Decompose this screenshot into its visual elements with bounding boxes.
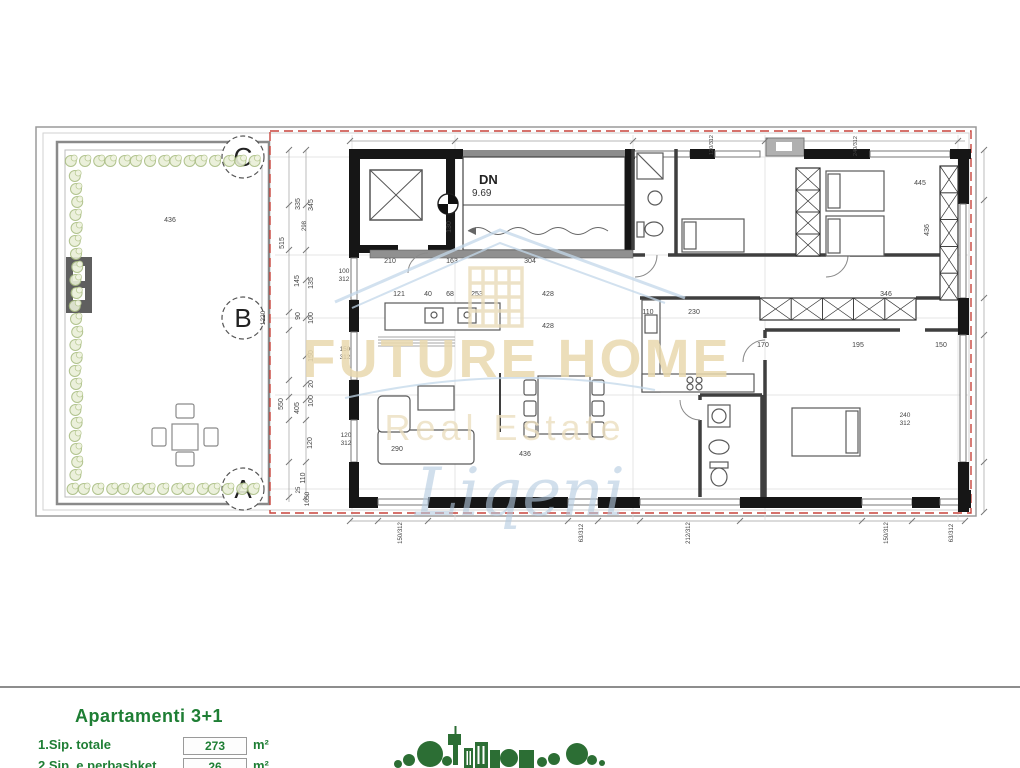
apartment-title: Apartamenti 3+1: [75, 706, 223, 727]
dimension-label: 145: [294, 275, 301, 287]
watermark-script: Liqeni: [414, 454, 625, 531]
dimension-label: 63/312: [949, 523, 955, 542]
dimension-label: 346: [880, 291, 892, 298]
dimension-label: 130: [446, 221, 453, 233]
watermark-brand: FUTURE HOME: [303, 329, 732, 389]
dimension-label: 515: [279, 237, 286, 249]
dimension-label: 121: [393, 291, 405, 298]
dimension-label: 436: [164, 217, 176, 224]
dimension-label: 405: [294, 402, 301, 414]
area-total-label: 1.Sip. totale: [38, 737, 111, 752]
sink: [648, 191, 662, 205]
sink: [709, 440, 729, 454]
toilet-tank: [710, 462, 728, 468]
watermark: FUTURE HOME Real Estate Liqeni: [303, 230, 732, 531]
dimension-label: 135: [308, 277, 315, 289]
dimension-label: 335: [295, 198, 302, 210]
watermark-tagline: Real Estate: [384, 407, 625, 448]
dimension-label: 110: [642, 309, 653, 316]
dimension-label: 110: [300, 472, 307, 483]
dimension-label: 195: [852, 342, 864, 349]
stairs-direction-label: DN: [479, 172, 498, 187]
dimension-label: 120: [341, 432, 352, 439]
dimension-label: 445: [914, 180, 926, 187]
footer-divider: [0, 686, 1020, 688]
dimension-label: 428: [542, 291, 554, 298]
dimension-label: 230: [688, 309, 700, 316]
dimension-label: 25: [296, 486, 302, 493]
floor-plan-page: { "drawing": { "grid_markers": ["C", "B"…: [0, 0, 1020, 768]
dimension-label: 120/312: [709, 135, 715, 155]
dimension-label: 1220: [260, 310, 267, 325]
dimension-label: 298: [302, 220, 308, 231]
area-shared-value: 26: [183, 758, 247, 768]
dimension-label: 40: [424, 291, 432, 298]
dimension-label: 170: [757, 342, 769, 349]
dimension-label: 120: [307, 437, 314, 449]
toilet-tank: [637, 222, 644, 237]
dimension-label: 100: [339, 268, 350, 275]
area-shared-label: 2.Sip. e perbashket: [38, 758, 157, 768]
floor-plan-canvas: C B A: [0, 0, 1020, 768]
stairs-level-label: 9.69: [472, 188, 492, 199]
dimension-label: 550: [278, 398, 285, 410]
area-total-unit: m²: [253, 737, 269, 752]
toilet: [711, 468, 727, 486]
dimension-label: 100: [308, 312, 315, 324]
area-row-shared: 2.Sip. e perbashket 26 m²: [38, 758, 157, 768]
area-total-value: 273: [183, 737, 247, 755]
dimension-label: 240/312: [853, 136, 859, 156]
dimension-label: 312: [341, 440, 352, 447]
dimension-label: 240: [900, 412, 911, 419]
dimension-label: 212/312: [686, 522, 692, 544]
area-row-total: 1.Sip. totale 273 m²: [38, 737, 111, 755]
dimension-label: 90: [295, 312, 302, 320]
dimension-label: 304: [524, 258, 536, 265]
dimension-label: 150/312: [398, 522, 404, 544]
dimension-label: 100: [308, 395, 315, 407]
area-shared-unit: m²: [253, 758, 269, 768]
toilet: [645, 222, 663, 236]
dimension-label: 345: [308, 199, 315, 211]
dimension-label: 312: [339, 276, 350, 283]
agency-skyline-logo: [392, 726, 652, 768]
dimension-label: 150/312: [884, 522, 890, 544]
dimension-label: 436: [924, 224, 931, 236]
grid-marker-b: B: [234, 303, 251, 333]
dimension-label: 68: [446, 291, 454, 298]
dimension-label: 1050: [304, 491, 311, 506]
dimension-label: 312: [900, 420, 911, 427]
dimension-label: 150: [935, 342, 947, 349]
dimension-label: 210: [384, 258, 396, 265]
